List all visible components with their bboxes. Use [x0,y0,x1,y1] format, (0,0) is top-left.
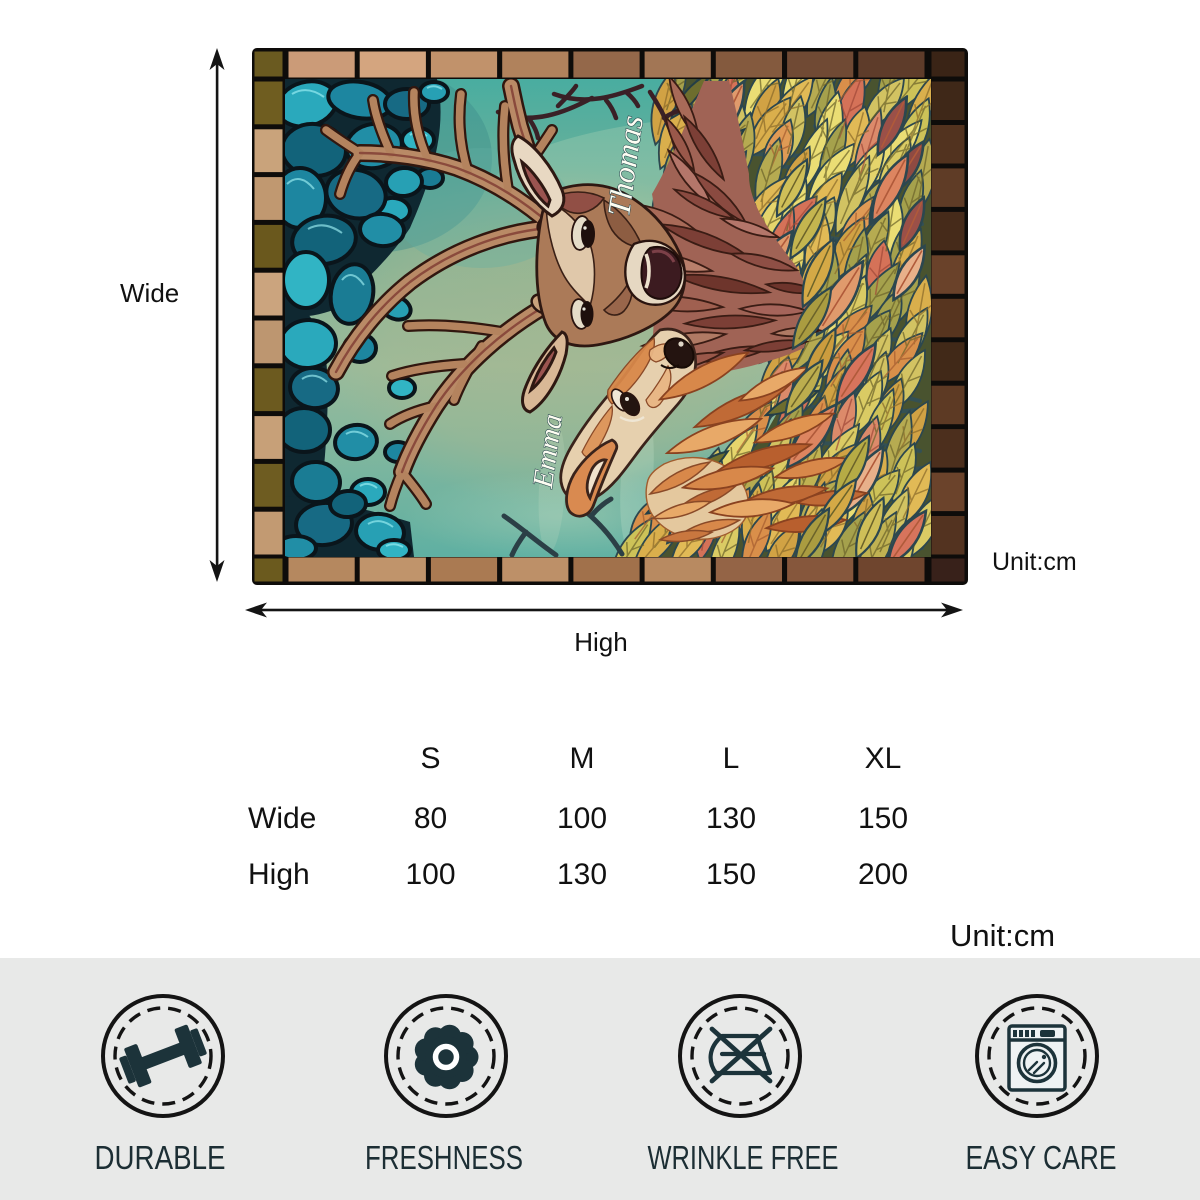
svg-text:130: 130 [706,802,756,835]
svg-text:130: 130 [557,858,607,891]
svg-text:Unit:cm: Unit:cm [950,918,1055,953]
svg-text:100: 100 [557,802,607,835]
svg-text:150: 150 [858,802,908,835]
svg-text:L: L [723,742,740,775]
svg-text:Wide: Wide [248,802,316,835]
svg-text:FRESHNESS: FRESHNESS [365,1139,523,1176]
svg-text:High: High [574,627,627,657]
svg-text:XL: XL [865,742,902,775]
svg-text:WRINKLE FREE: WRINKLE FREE [648,1139,839,1176]
svg-text:M: M [570,742,595,775]
svg-text:DURABLE: DURABLE [95,1139,226,1176]
svg-text:80: 80 [414,802,447,835]
svg-text:Unit:cm: Unit:cm [992,548,1077,576]
svg-text:200: 200 [858,858,908,891]
svg-text:100: 100 [405,858,455,891]
svg-text:High: High [248,858,310,891]
svg-text:S: S [420,742,440,775]
svg-text:150: 150 [706,858,756,891]
svg-text:EASY CARE: EASY CARE [966,1139,1117,1176]
svg-text:Wide: Wide [120,278,179,308]
